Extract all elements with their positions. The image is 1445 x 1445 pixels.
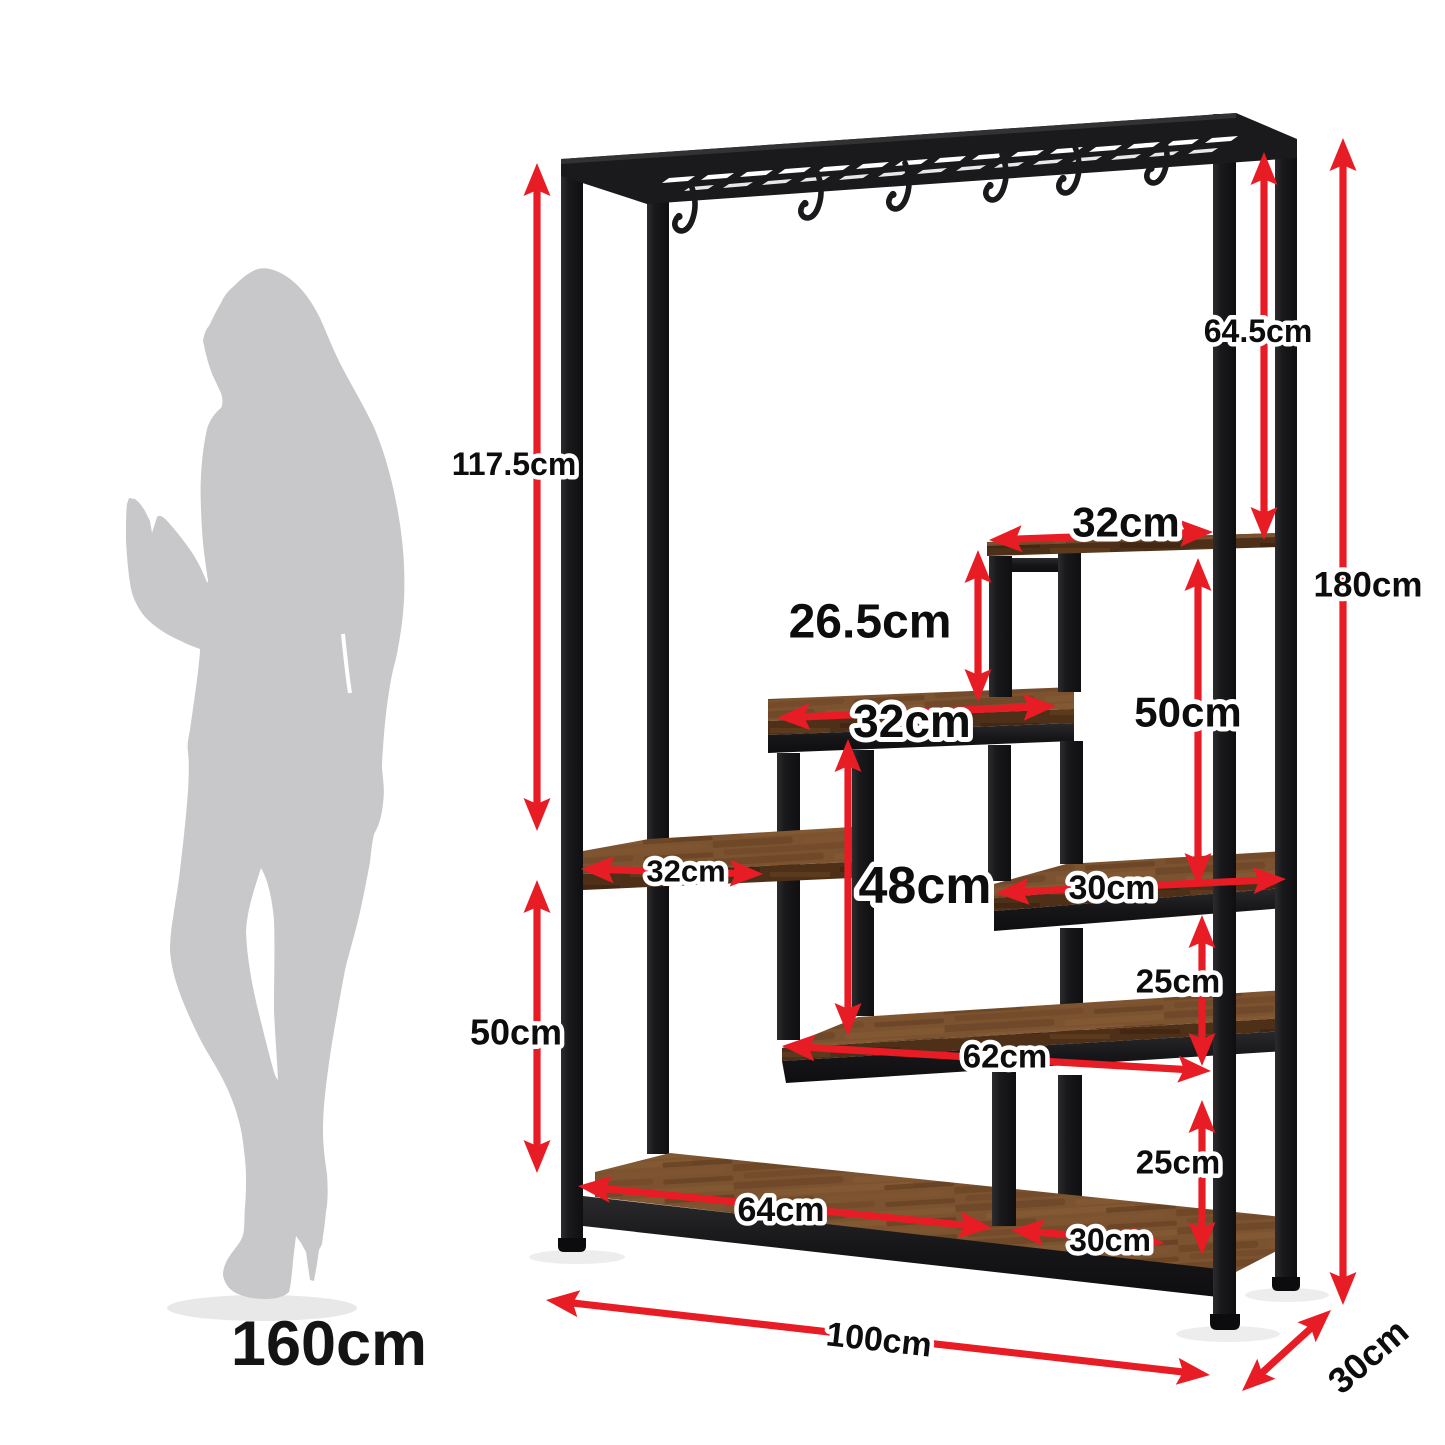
- svg-text:180cm: 180cm: [1314, 566, 1423, 605]
- svg-text:64cm: 64cm: [738, 1191, 825, 1229]
- svg-text:32cm: 32cm: [646, 854, 725, 889]
- svg-text:50cm: 50cm: [470, 1012, 562, 1053]
- svg-text:25cm: 25cm: [1136, 1144, 1220, 1181]
- svg-text:32cm: 32cm: [1072, 499, 1179, 546]
- svg-text:30cm: 30cm: [1069, 869, 1156, 907]
- svg-text:160cm: 160cm: [231, 1309, 427, 1379]
- svg-text:62cm: 62cm: [963, 1038, 1047, 1075]
- svg-text:32cm: 32cm: [853, 695, 971, 747]
- svg-text:48cm: 48cm: [859, 857, 992, 915]
- svg-text:25cm: 25cm: [1136, 963, 1220, 1000]
- svg-text:50cm: 50cm: [1134, 689, 1241, 736]
- svg-text:30cm: 30cm: [1069, 1222, 1151, 1258]
- svg-text:117.5cm: 117.5cm: [452, 446, 577, 482]
- svg-text:64.5cm: 64.5cm: [1204, 313, 1313, 349]
- svg-text:26.5cm: 26.5cm: [789, 596, 952, 649]
